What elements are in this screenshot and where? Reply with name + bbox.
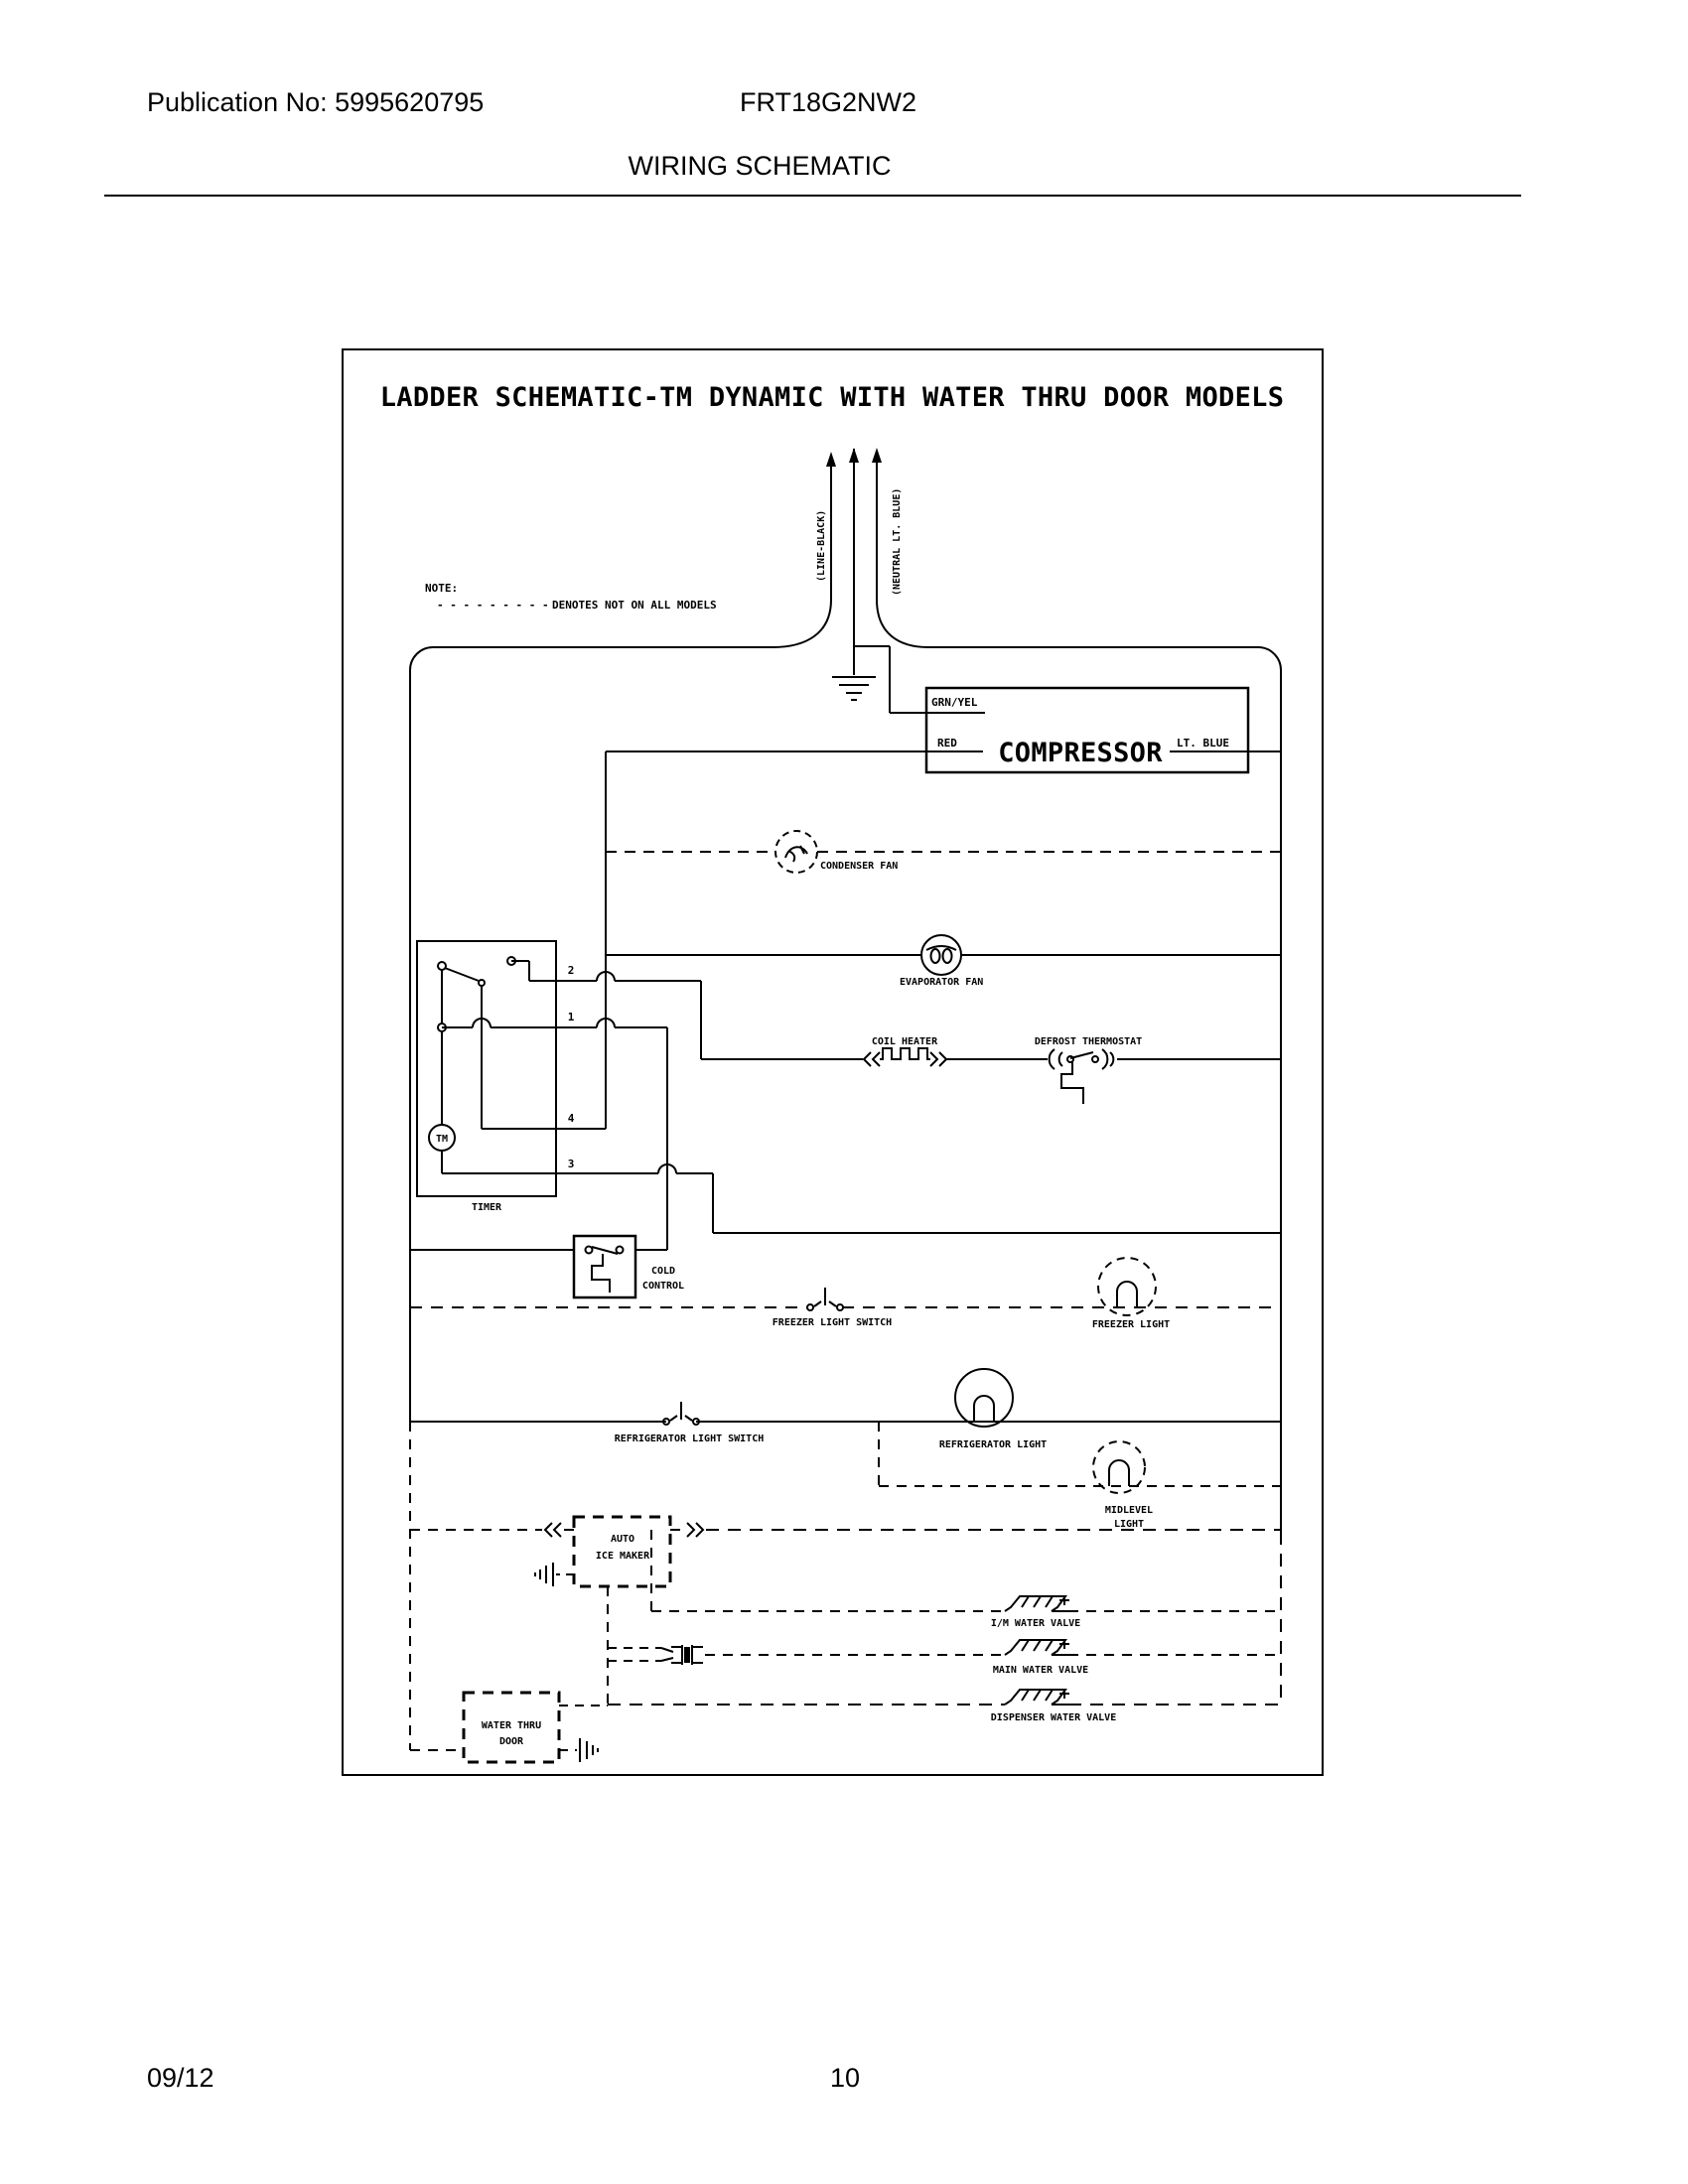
water-valves: I/M WATER VALVE MAIN WATER VALVE DISPENS… (608, 1586, 1281, 1723)
timer-terminal-3: 3 (568, 1158, 575, 1170)
condenser-fan: CONDENSER FAN (606, 831, 1281, 873)
schematic-title: LADDER SCHEMATIC-TM DYNAMIC WITH WATER T… (380, 382, 1285, 413)
main-water-valve-label: MAIN WATER VALVE (993, 1665, 1088, 1676)
water-thru-door-label-1: WATER THRU (482, 1720, 541, 1731)
refrigerator-light-filament (974, 1396, 994, 1422)
ice-maker-label-2: ICE MAKER (596, 1551, 650, 1562)
inline-connector-icon (671, 1645, 703, 1665)
note-text: DENOTES NOT ON ALL MODELS (552, 599, 717, 612)
freezer-light-switch-symbol (807, 1288, 843, 1310)
motor-winding (943, 949, 952, 963)
evaporator-fan-label: EVAPORATOR FAN (900, 977, 983, 988)
refrigerator-light-label: REFRIGERATOR LIGHT (939, 1439, 1047, 1450)
refrigerator-light-symbol (955, 1369, 1013, 1427)
connector-arrows-left-icon (864, 1052, 880, 1066)
left-rail-dashed (410, 1422, 464, 1750)
water-thru-door-stubs (559, 1706, 608, 1750)
im-water-valve-label: I/M WATER VALVE (991, 1618, 1080, 1629)
note-dashes: - - - - - - - - - (437, 599, 549, 612)
supply-feeds (433, 449, 1259, 713)
fan-glyph (785, 846, 807, 862)
defrost-circuit: COIL HEATER DEFROST THERMOSTAT (701, 1036, 1281, 1104)
timer-motor-label: TM (436, 1134, 448, 1145)
midlevel-light-label-1: MIDLEVEL (1105, 1505, 1153, 1516)
cold-control-switch (586, 1247, 624, 1294)
condenser-fan-label: CONDENSER FAN (820, 861, 898, 872)
timer-terminal-2: 2 (568, 964, 575, 977)
timer-terminal-4: 4 (568, 1112, 575, 1125)
midlevel-branch (879, 1422, 1281, 1486)
cold-control: COLD CONTROL (410, 1236, 684, 1297)
lt-blue-label: LT. BLUE (1177, 737, 1229, 750)
water-thru-door-ground-icon (580, 1738, 598, 1762)
wire-terminal-2 (529, 972, 701, 1059)
defrost-thermostat-symbol (1050, 1049, 1114, 1104)
neutral-lt-blue-label: (NEUTRAL LT. BLUE) (892, 488, 903, 596)
timer-box (417, 941, 556, 1196)
cold-control-box (574, 1236, 635, 1297)
water-thru-door-label-2: DOOR (499, 1736, 524, 1747)
wiring-schematic-canvas: LADDER SCHEMATIC-TM DYNAMIC WITH WATER T… (0, 0, 1688, 2184)
cold-control-label-2: CONTROL (642, 1281, 684, 1292)
refrigerator-light-switch-symbol (663, 1402, 699, 1425)
ice-maker-connector-left-icon (545, 1523, 561, 1537)
freezer-light-switch-label: FREEZER LIGHT SWITCH (773, 1317, 892, 1328)
neutral-arrow (872, 448, 882, 463)
manual-page: Publication No: 5995620795 FRT18G2NW2 WI… (0, 0, 1688, 2184)
freezer-light-circuit: FREEZER LIGHT SWITCH FREEZER LIGHT (410, 1258, 1281, 1330)
timer-terminal-1: 1 (568, 1011, 575, 1024)
note-label: NOTE: (425, 582, 458, 595)
dispenser-water-valve-label: DISPENSER WATER VALVE (991, 1712, 1116, 1723)
cold-control-label-1: COLD (651, 1266, 675, 1277)
timer-label: TIMER (472, 1202, 502, 1213)
motor-arc (926, 946, 956, 950)
evaporator-fan-motor (921, 935, 961, 975)
im-valve-coil (1005, 1595, 1069, 1611)
left-rail (410, 647, 433, 1422)
evaporator-fan: EVAPORATOR FAN (606, 935, 1281, 988)
ice-maker-circuit: AUTO ICE MAKER (410, 1517, 1281, 1611)
main-valve-coil (1005, 1639, 1069, 1655)
refrigerator-light-switch-label: REFRIGERATOR LIGHT SWITCH (615, 1433, 765, 1444)
defrost-timer: TM TIMER 2 1 4 3 (417, 941, 575, 1213)
coil-heater-label: COIL HEATER (872, 1036, 938, 1047)
refrigerator-light-circuit: REFRIGERATOR LIGHT SWITCH REFRIGERATOR L… (410, 1369, 1281, 1530)
harness-converge (661, 1648, 673, 1661)
motor-winding (931, 949, 940, 963)
compressor-label: COMPRESSOR (998, 738, 1163, 768)
wire-terminal-3 (442, 1164, 713, 1233)
ice-maker-connector-right-icon (687, 1523, 703, 1537)
harness-double-line (608, 1648, 661, 1661)
schematic-border (343, 349, 1323, 1775)
line-black-label: (LINE-BLACK) (816, 510, 827, 582)
wire-terminal-1 (442, 1019, 667, 1027)
ice-maker-ground-icon (535, 1563, 553, 1586)
defrost-thermostat-label: DEFROST THERMOSTAT (1035, 1036, 1142, 1047)
ice-maker-label-1: AUTO (611, 1534, 634, 1545)
midlevel-light-label-2: LIGHT (1114, 1519, 1144, 1530)
ground-wire-arrow (849, 448, 859, 463)
freezer-light-label: FREEZER LIGHT (1092, 1319, 1170, 1330)
ground-symbol-main (832, 677, 876, 700)
dispenser-valve-coil (1005, 1689, 1069, 1705)
grn-yel-label: GRN/YEL (931, 696, 978, 709)
freezer-light-symbol (1098, 1258, 1156, 1315)
water-thru-door-circuit: WATER THRU DOOR (464, 1693, 608, 1762)
right-rail (1259, 647, 1281, 1532)
coil-heater-element (880, 1048, 930, 1059)
line-arrow (826, 452, 836, 467)
red-label: RED (937, 737, 957, 750)
condenser-fan-motor (775, 831, 817, 873)
connector-arrows-right-icon (930, 1052, 946, 1066)
midlevel-light-filament (1109, 1460, 1129, 1486)
compressor: GRN/YEL RED LT. BLUE COMPRESSOR (606, 688, 1281, 772)
freezer-light-filament (1117, 1282, 1137, 1307)
